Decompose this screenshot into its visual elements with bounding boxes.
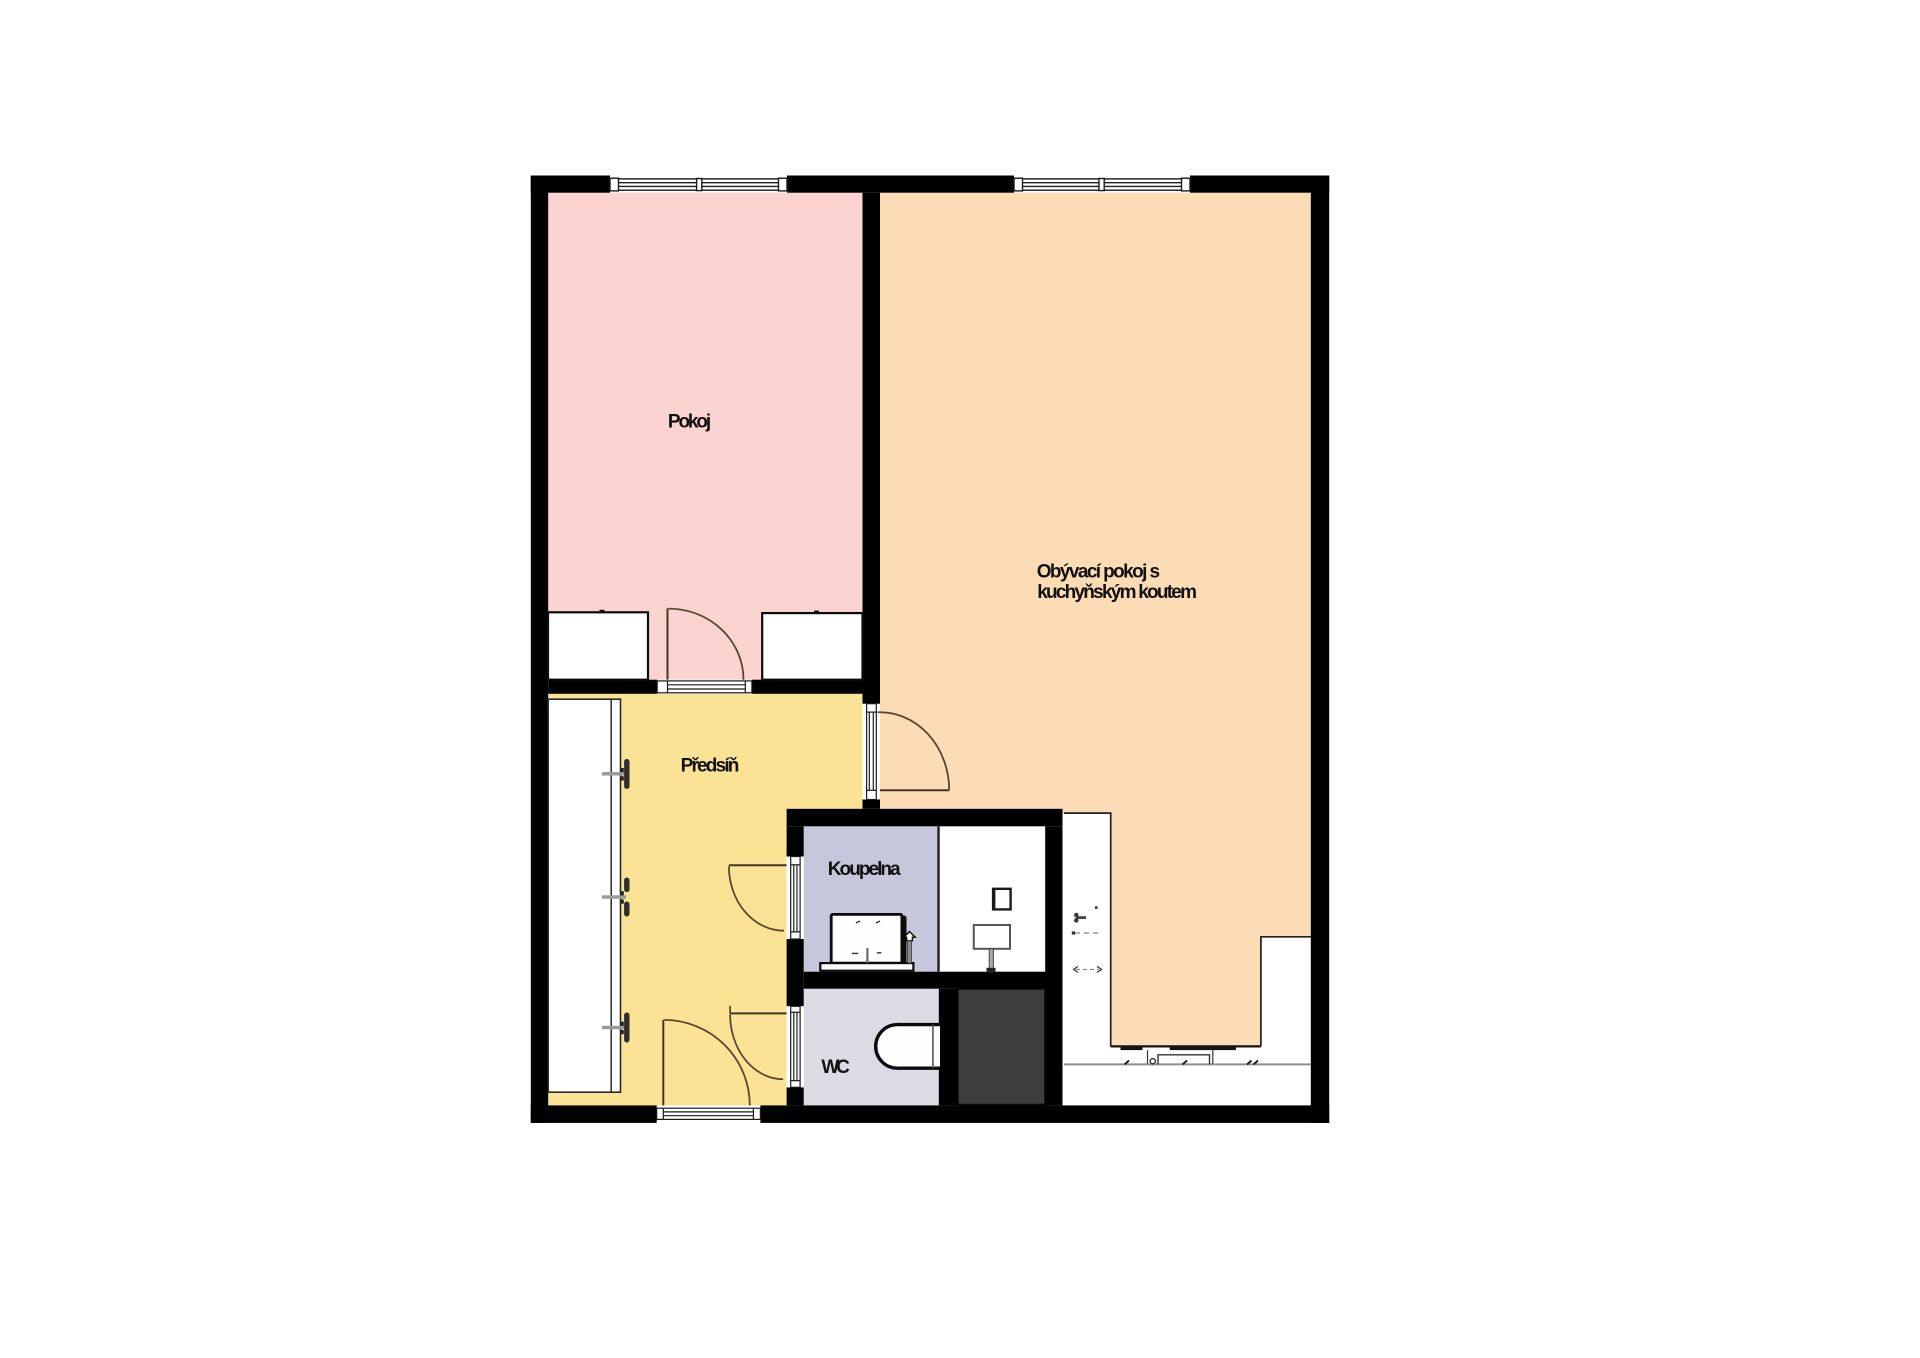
svg-text:Pokoj: Pokoj xyxy=(668,412,711,433)
svg-text:WC: WC xyxy=(821,1057,850,1078)
svg-text:Koupelna: Koupelna xyxy=(828,859,901,880)
svg-text:Obývací pokoj s: Obývací pokoj s xyxy=(1037,562,1160,583)
svg-text:kuchyňským koutem: kuchyňským koutem xyxy=(1037,582,1197,603)
svg-text:Předsíň: Předsíň xyxy=(681,756,740,777)
